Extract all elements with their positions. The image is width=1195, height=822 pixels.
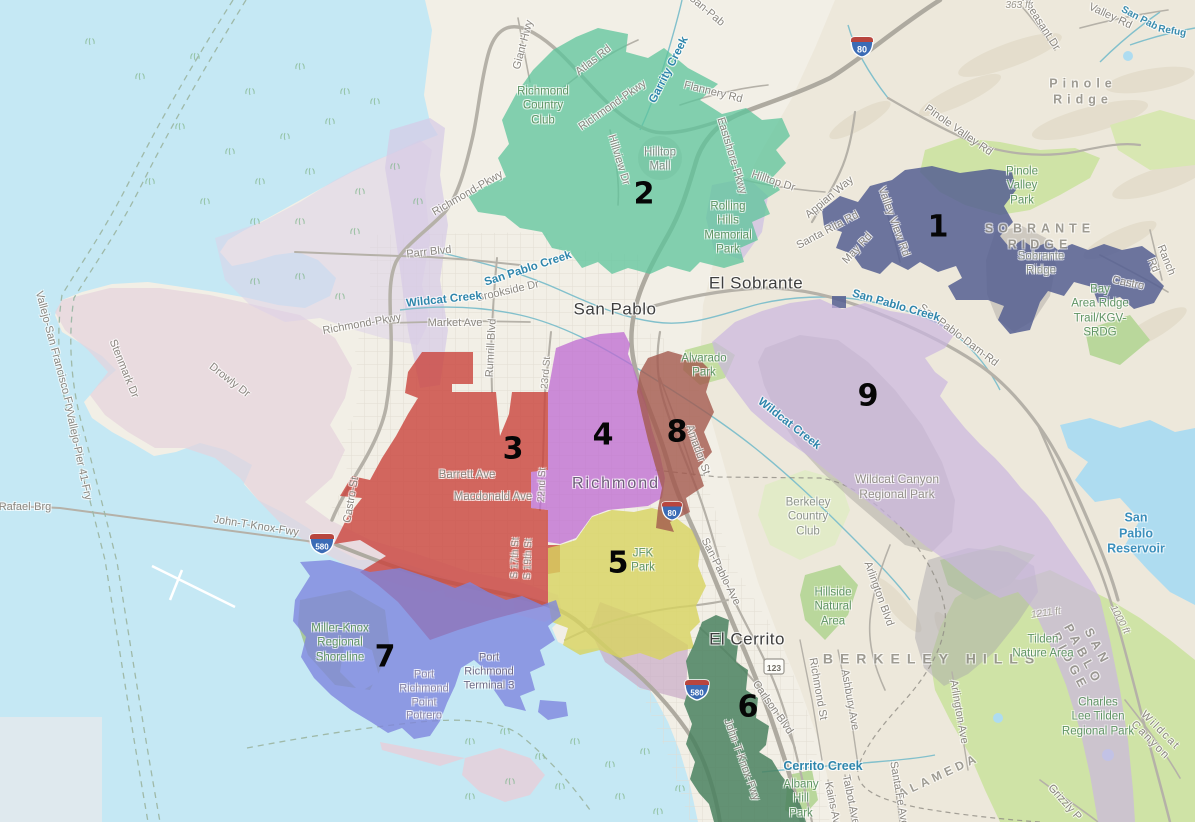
ca-123-shield-icon: 123	[764, 659, 784, 674]
svg-text:580: 580	[315, 543, 329, 552]
svg-text:123: 123	[767, 663, 781, 673]
tile-artifact	[0, 717, 102, 822]
svg-text:580: 580	[690, 689, 704, 698]
svg-text:80: 80	[668, 509, 677, 518]
map-canvas[interactable]: 80 80 580 580 123 San Pablo El Sobrante …	[0, 0, 1195, 822]
basemap: 80 80 580 580 123	[0, 0, 1195, 822]
svg-text:80: 80	[857, 45, 867, 55]
